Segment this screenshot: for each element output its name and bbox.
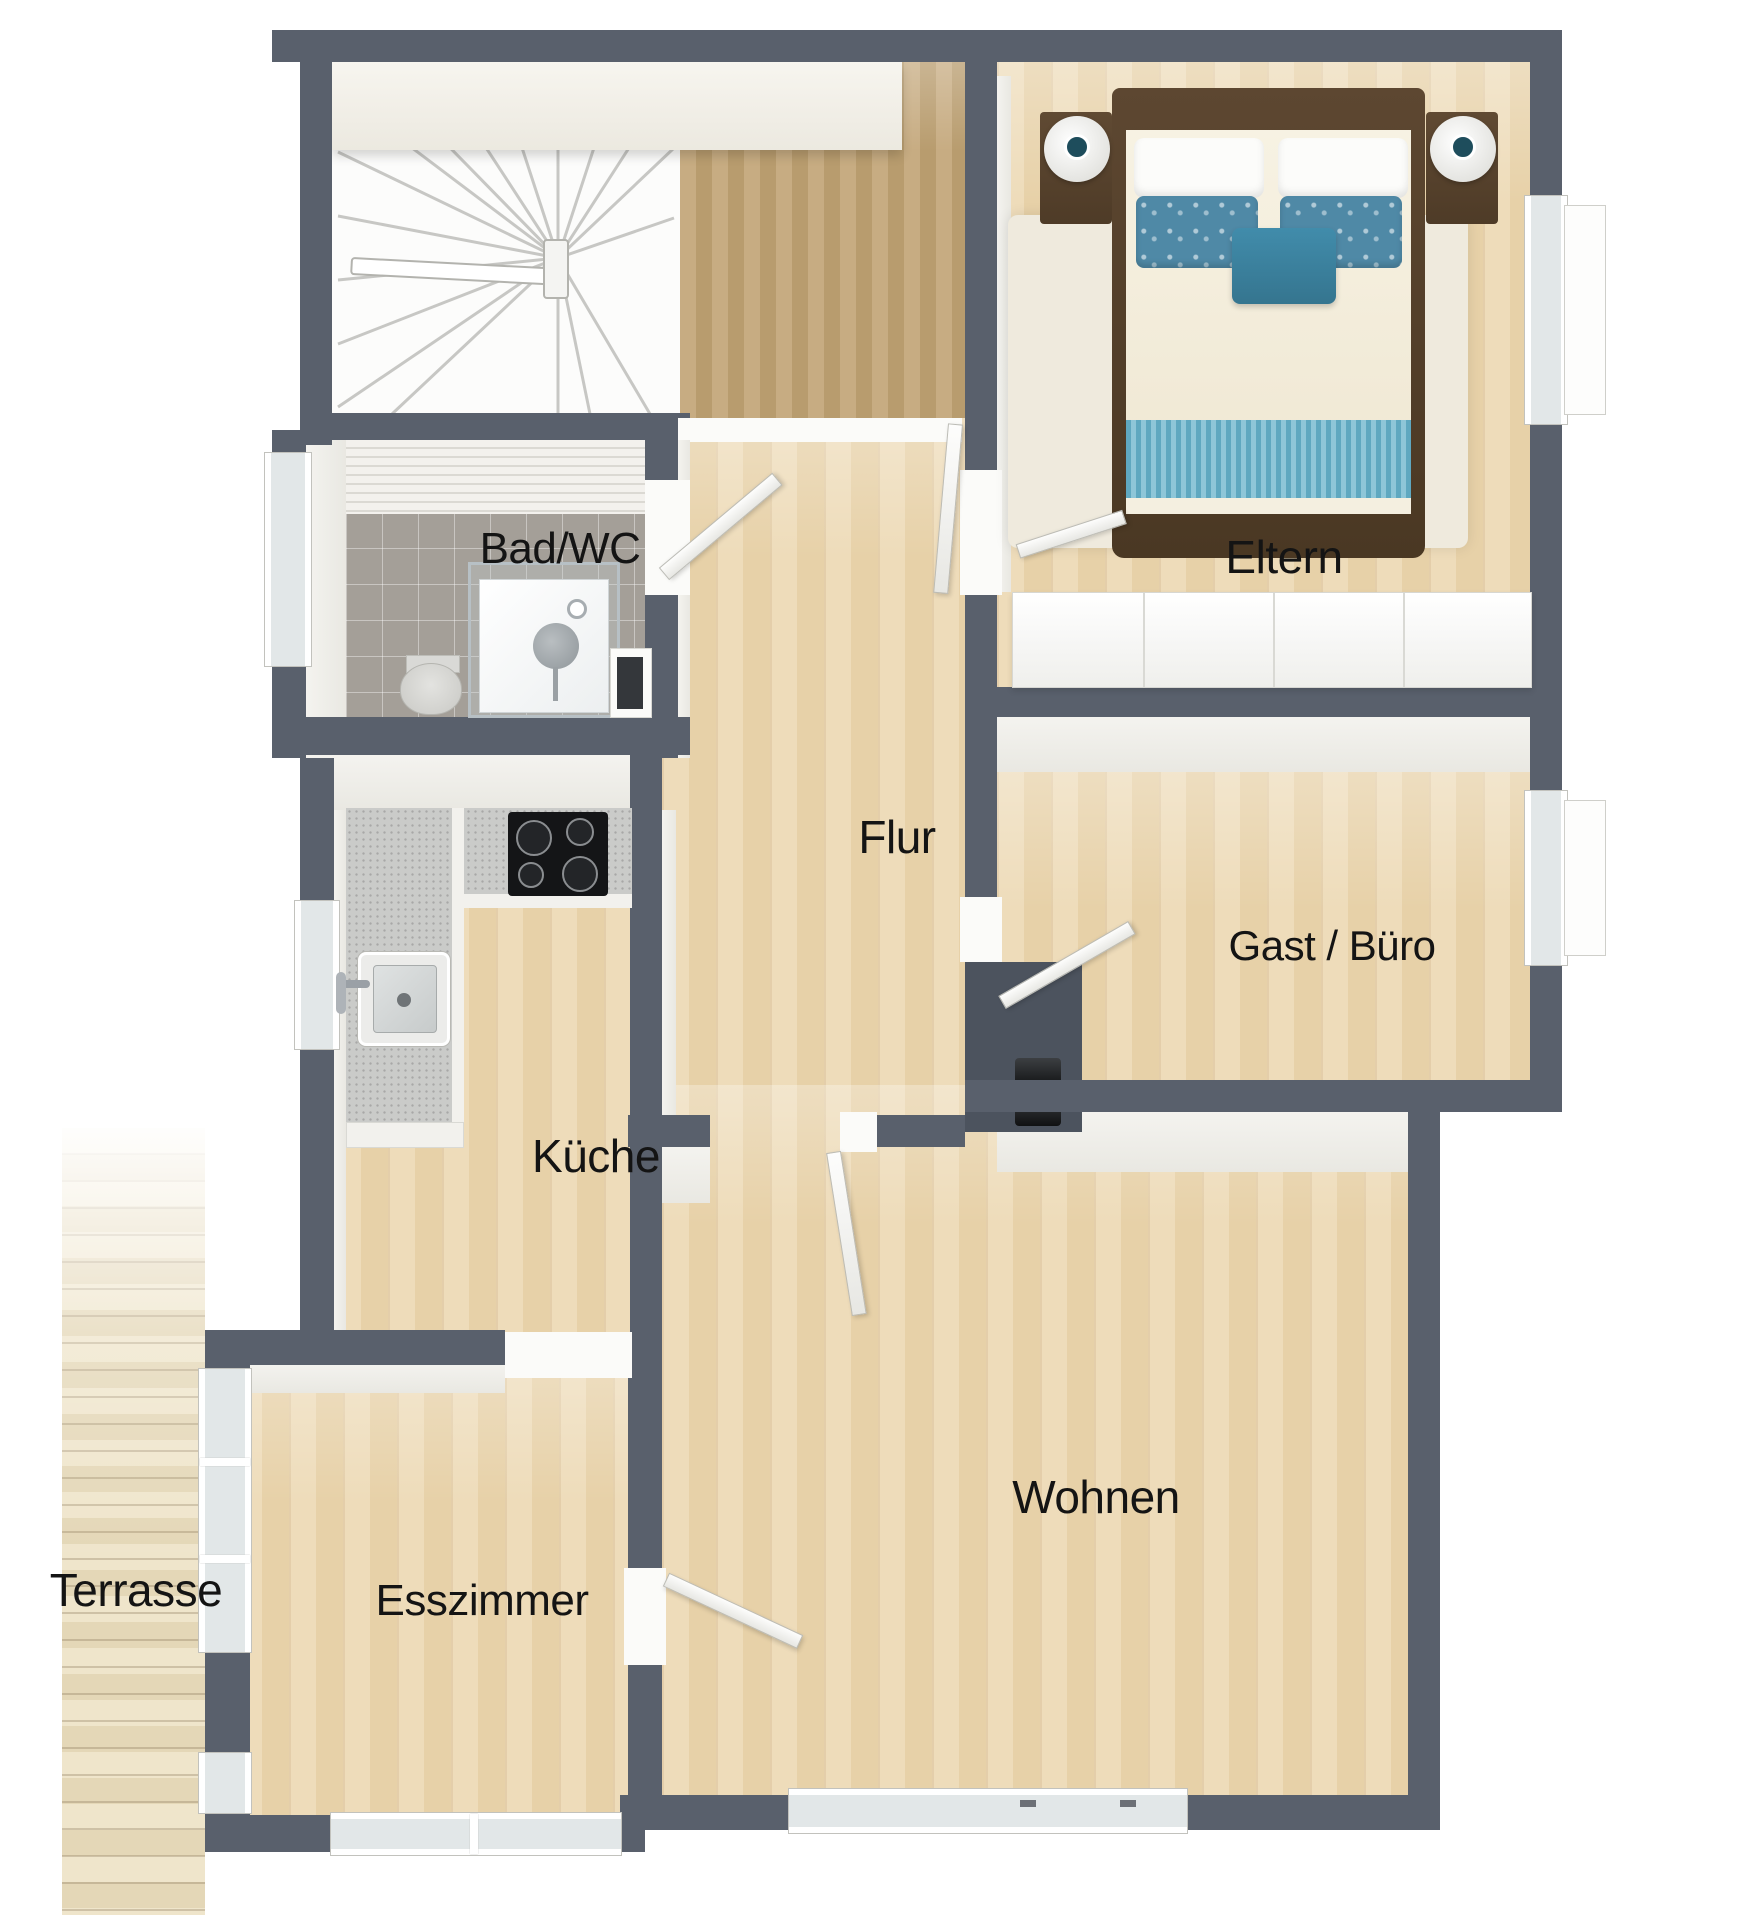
lamp-right-finial-icon [1450, 134, 1476, 160]
kueche-window [294, 900, 340, 1050]
floor-plan: Bad/WC Eltern Flur Gast / Büro Küche Woh… [0, 0, 1745, 1920]
room-label-kueche: Küche [532, 1129, 660, 1183]
sink-drain-icon [397, 993, 411, 1007]
wardrobe [1012, 592, 1532, 688]
shower-knob-icon [567, 599, 587, 619]
wohnen-east-wall [1408, 1080, 1440, 1830]
bad-wall-tile-face [346, 440, 662, 514]
room-label-esszimmer: Esszimmer [375, 1576, 588, 1626]
stairwell-west-wall [300, 30, 332, 445]
gast-south-wall [965, 1080, 1562, 1112]
bad-west-wall-face [306, 440, 346, 717]
esszimmer-west-wall-bottom [205, 1812, 250, 1852]
bed-pillow-left [1134, 138, 1264, 198]
kueche-esszimmer-threshold [505, 1332, 632, 1378]
esszimmer-east-wall-upper [628, 1335, 662, 1568]
kueche-south-wall [205, 1330, 505, 1365]
eltern-window-sill [1564, 205, 1606, 415]
terrasse-door-mullion-2 [200, 1555, 250, 1563]
wohnen-floor [662, 1085, 1408, 1797]
eltern-door-opening [960, 470, 1002, 595]
flur-door-jamb [840, 1112, 877, 1152]
eltern-gast-divider-wall [965, 687, 1562, 717]
landing-threshold [662, 418, 962, 442]
gast-window [1524, 790, 1568, 966]
terrasse-door-mullion-1 [200, 1458, 250, 1466]
eltern-window [1524, 195, 1568, 425]
burner-2-icon [566, 818, 594, 846]
esszimmer-west-wall-mid [205, 1652, 250, 1755]
room-label-bad: Bad/WC [480, 524, 641, 574]
eltern-south-wall-face [997, 717, 1532, 772]
kueche-west-wall-face [334, 810, 346, 1330]
terrasse-deck [62, 1128, 205, 1915]
bed-pillow-right [1278, 138, 1408, 198]
bed-accent-pillow [1232, 228, 1336, 304]
burner-1-icon [516, 820, 552, 856]
wohnen-window-handle-2 [1120, 1800, 1136, 1807]
kitchen-counter-end-cap [346, 1122, 464, 1148]
wohnen-window-handle-1 [1020, 1800, 1036, 1807]
cooktop [508, 812, 608, 896]
kitchen-counter-west-edge [452, 808, 464, 1128]
room-label-wohnen: Wohnen [1012, 1470, 1180, 1524]
esszimmer-west-window [198, 1752, 252, 1814]
lamp-left-finial-icon [1064, 134, 1090, 160]
wardrobe-divider-1 [1143, 593, 1145, 687]
kitchen-sink [358, 952, 450, 1046]
shower-hose [553, 667, 558, 701]
bathroom-vanity [610, 648, 652, 718]
burner-3-icon [518, 862, 544, 888]
bed-throw-blanket [1126, 420, 1411, 502]
kueche-east-wall [630, 755, 662, 1335]
gast-west-wall [965, 717, 997, 897]
bed-sheet-fold [1126, 498, 1411, 514]
toilet-bowl [400, 663, 462, 715]
esszimmer-west-wall-top [205, 1330, 250, 1368]
room-label-gast: Gast / Büro [1229, 922, 1436, 970]
kueche-north-wall-face [306, 755, 662, 810]
burner-4-icon [562, 856, 598, 892]
toilet [400, 655, 464, 717]
esszimmer-wohnen-opening [624, 1568, 666, 1665]
vanity-basin [617, 657, 643, 709]
flur-west-wall-face [662, 810, 676, 1115]
stair-bad-divider-wall [300, 413, 690, 440]
exterior-wall-top [272, 30, 1562, 62]
faucet-base-icon [336, 972, 346, 1014]
shower [468, 562, 620, 718]
wardrobe-divider-3 [1403, 593, 1405, 687]
wohnen-south-window [788, 1788, 1188, 1834]
eltern-west-wall-upper [965, 30, 997, 470]
room-label-eltern: Eltern [1225, 530, 1342, 584]
flur-south-stub-east [877, 1115, 965, 1147]
bad-window [264, 452, 312, 667]
room-label-terrasse: Terrasse [50, 1563, 222, 1617]
bad-south-wall [272, 717, 690, 755]
stair-ceiling-overhang [332, 62, 902, 150]
gast-window-sill [1564, 800, 1606, 956]
table-lamp-left-icon [1044, 116, 1110, 182]
gast-door-opening [960, 897, 1002, 962]
wardrobe-divider-2 [1273, 593, 1275, 687]
esszimmer-south-window-mullion [470, 1814, 478, 1854]
room-label-flur: Flur [858, 810, 935, 864]
esszimmer-east-wall-lower [628, 1665, 662, 1815]
shower-head-icon [533, 623, 579, 669]
table-lamp-right-icon [1430, 116, 1496, 182]
esszimmer-north-wall-face [250, 1363, 505, 1393]
flur-south-stub-face [662, 1147, 710, 1203]
